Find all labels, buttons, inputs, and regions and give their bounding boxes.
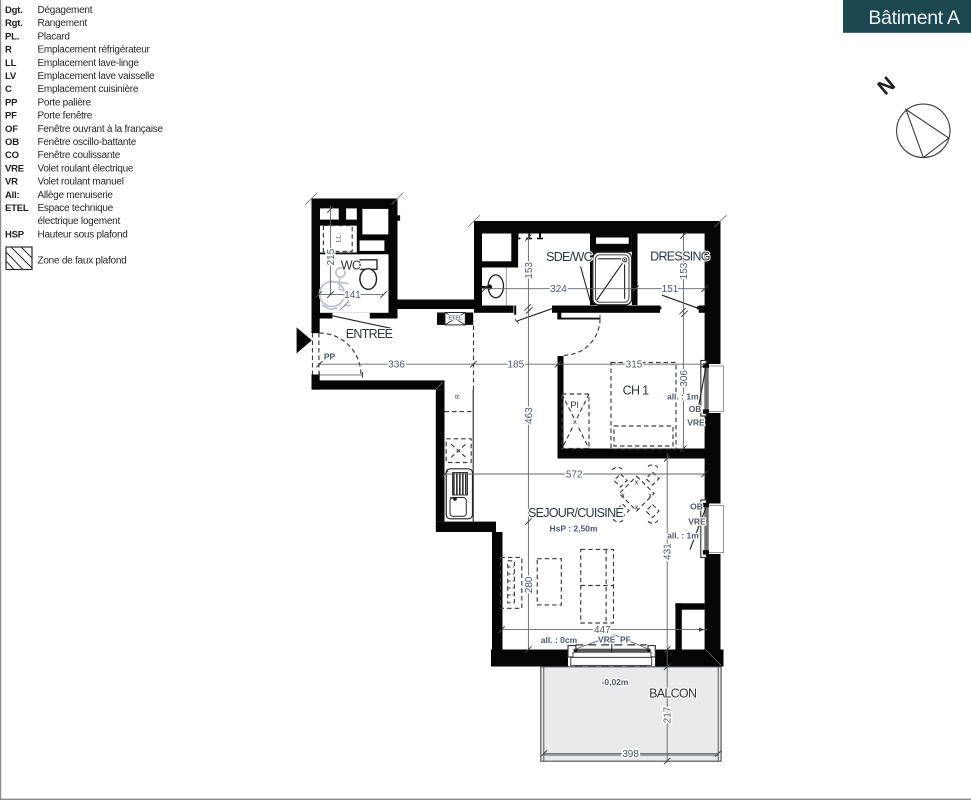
svg-text:Rangement: Rangement [38,18,88,29]
svg-text:VRE: VRE [688,517,706,527]
svg-text:Emplacement lave-linge: Emplacement lave-linge [38,58,140,69]
svg-text:LV: LV [5,71,17,82]
svg-text:PL.: PL. [5,31,19,42]
svg-text:x: x [648,493,652,500]
svg-text:PP: PP [5,97,18,108]
svg-text:153: 153 [679,262,690,279]
svg-text:Dégagement: Dégagement [38,5,93,16]
svg-text:398: 398 [622,749,639,760]
svg-text:LL: LL [5,58,17,69]
svg-text:151: 151 [662,284,679,295]
svg-text:Porte palière: Porte palière [38,97,92,108]
svg-text:Fenêtre oscillo-battante: Fenêtre oscillo-battante [38,137,137,148]
svg-text:Porte fenêtre: Porte fenêtre [38,111,93,122]
svg-text:LL: LL [336,235,343,243]
svg-text:CO: CO [5,150,19,161]
svg-text:463: 463 [524,407,535,424]
svg-text:CH 1: CH 1 [623,384,649,398]
svg-text:all. : 0cm: all. : 0cm [541,635,578,645]
svg-text:306: 306 [679,370,690,387]
svg-text:x: x [573,417,577,426]
svg-text:141: 141 [344,290,361,301]
svg-text:all. : 1m: all. : 1m [667,391,699,401]
svg-text:Hauteur sous plafond: Hauteur sous plafond [38,229,128,240]
svg-text:C: C [5,84,12,95]
svg-text:215: 215 [326,248,337,265]
svg-text:Volet roulant électrique: Volet roulant électrique [38,163,134,174]
svg-text:280: 280 [524,576,535,593]
svg-text:VRE: VRE [687,418,705,428]
svg-text:PF: PF [620,635,631,645]
svg-text:336: 336 [388,360,405,371]
svg-text:SEJOUR/CUISINE: SEJOUR/CUISINE [528,506,623,520]
svg-text:x: x [635,505,639,512]
svg-text:Fenêtre ouvrant à la française: Fenêtre ouvrant à la française [38,124,164,135]
svg-text:572: 572 [566,470,583,481]
svg-text:-0,02m: -0,02m [602,677,629,687]
svg-text:x: x [621,493,625,500]
svg-text:Emplacement cuisinière: Emplacement cuisinière [38,84,139,95]
svg-text:431: 431 [663,543,674,560]
svg-text:153: 153 [524,262,535,279]
svg-text:HsP : 2,50m: HsP : 2,50m [549,524,597,534]
svg-text:OF: OF [5,124,18,135]
svg-text:Espace technique: Espace technique [38,203,114,214]
svg-text:WC: WC [341,259,361,273]
svg-text:VRE: VRE [598,635,616,645]
svg-text:PF: PF [5,111,17,122]
svg-text:ENTREE: ENTREE [346,327,393,341]
svg-text:Volet roulant manuel: Volet roulant manuel [38,177,124,188]
svg-text:All:: All: [5,190,20,201]
svg-text:Bâtiment A: Bâtiment A [868,7,960,29]
svg-text:ETEL: ETEL [448,315,462,321]
svg-text:Placard: Placard [38,31,70,42]
svg-text:HSP: HSP [5,229,25,240]
svg-text:Emplacement lave vaisselle: Emplacement lave vaisselle [38,71,156,82]
svg-text:217: 217 [663,706,674,723]
svg-text:all. : 1m: all. : 1m [667,531,699,541]
svg-text:OB: OB [689,404,702,414]
svg-text:185: 185 [507,360,524,371]
svg-text:R: R [5,45,12,56]
svg-text:VRE: VRE [5,163,24,174]
svg-text:315: 315 [626,360,643,371]
svg-text:SDE/WC: SDE/WC [546,250,592,264]
svg-text:Zone de faux plafond: Zone de faux plafond [38,256,127,267]
svg-text:VR: VR [5,177,18,188]
svg-text:R: R [455,394,462,399]
svg-text:Emplacement réfrigérateur: Emplacement réfrigérateur [38,45,151,56]
svg-text:Dgt.: Dgt. [5,5,23,16]
svg-text:PP: PP [324,352,336,362]
svg-text:OB: OB [690,502,703,512]
svg-text:DRESSING: DRESSING [650,250,710,264]
svg-text:x: x [635,480,639,487]
svg-text:324: 324 [550,284,567,295]
svg-text:Pl: Pl [570,400,578,411]
svg-text:Allège menuiserie: Allège menuiserie [38,190,114,201]
svg-text:Rgt.: Rgt. [5,18,23,29]
svg-text:OB: OB [5,137,19,148]
svg-text:ETEL: ETEL [5,203,29,214]
svg-text:électrique logement: électrique logement [38,216,121,227]
svg-text:Fenêtre coulissante: Fenêtre coulissante [38,150,121,161]
svg-text:BALCON: BALCON [649,687,697,701]
